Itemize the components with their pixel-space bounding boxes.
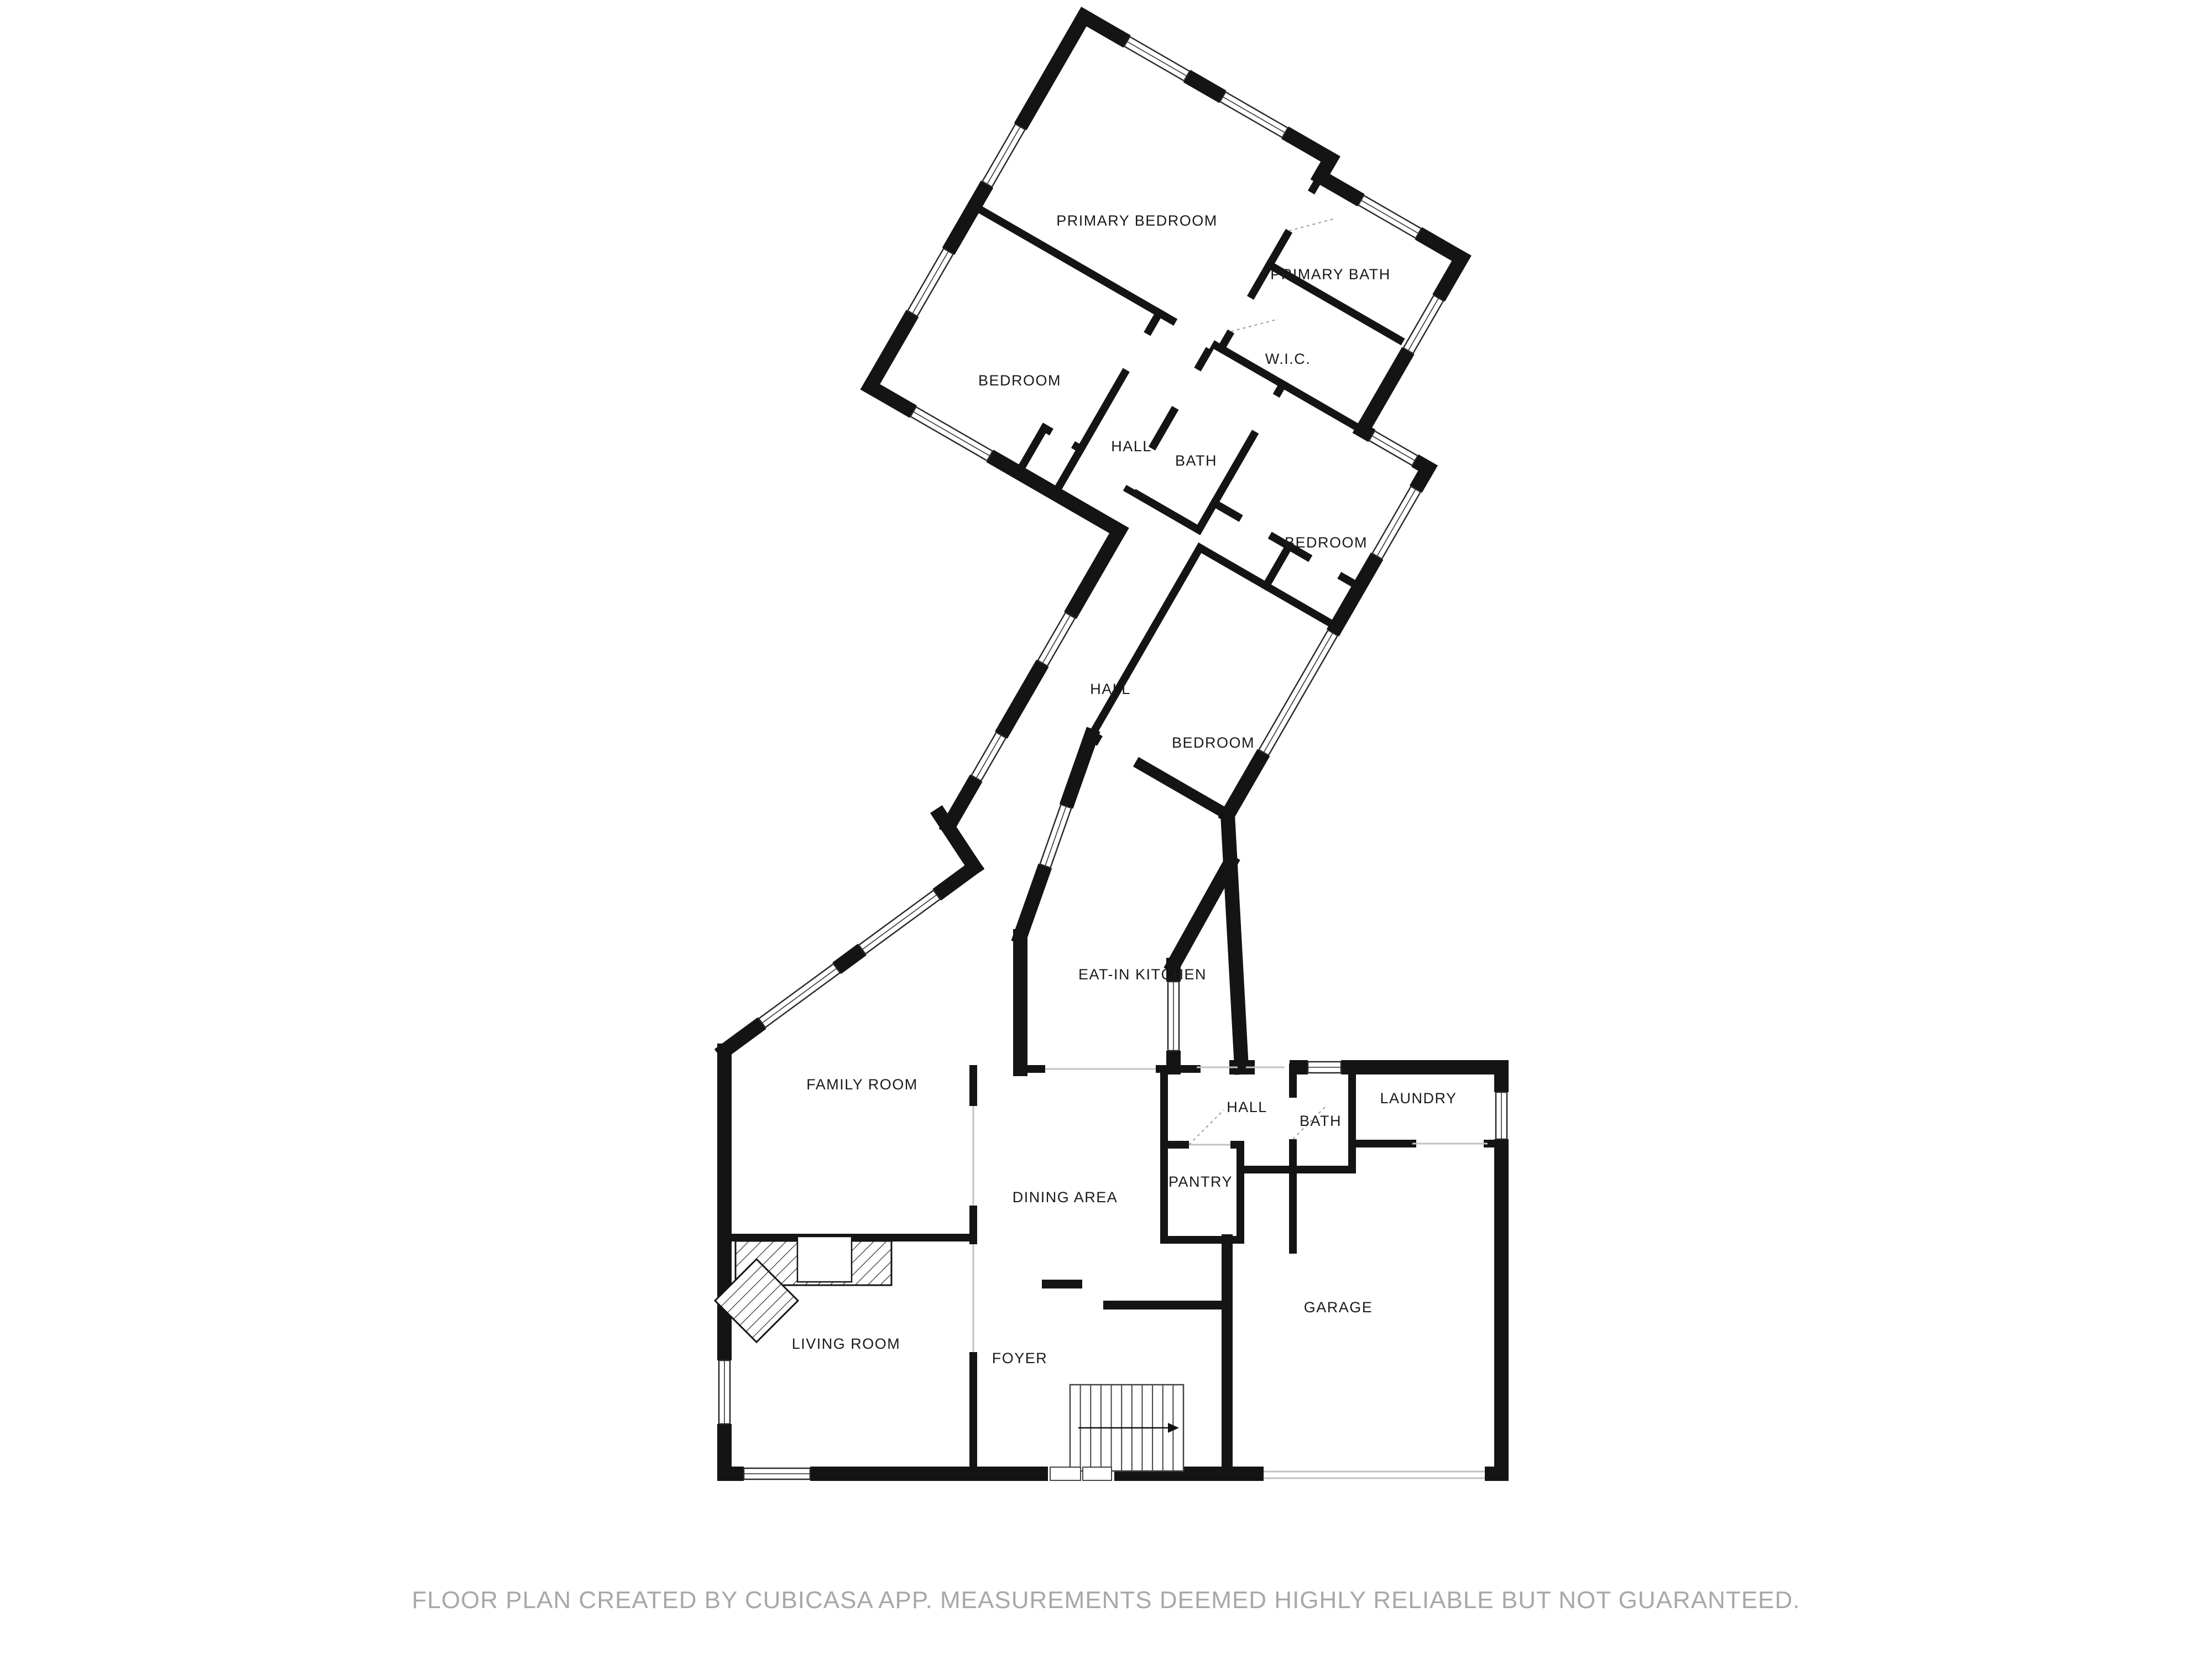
door-opening (1126, 334, 1147, 370)
door-opening (1289, 192, 1311, 231)
wall-segment (1266, 546, 1289, 586)
window-line (765, 973, 840, 1027)
window-line (1259, 630, 1328, 750)
room-label-bath-upper: BATH (1175, 452, 1217, 469)
room-label-bedroom-4: BEDROOM (1172, 734, 1255, 751)
room-label-bedroom-2: BEDROOM (978, 372, 1061, 389)
room-label-dining-area: DINING AREA (1013, 1189, 1118, 1206)
window-line (1223, 97, 1285, 133)
fireplace (715, 1237, 891, 1342)
front-door-panel (1050, 1467, 1081, 1480)
door-opening (1051, 432, 1073, 445)
firebox (797, 1237, 852, 1282)
plan-details (715, 1237, 1183, 1480)
room-label-laundry: LAUNDRY (1380, 1090, 1457, 1107)
window-line (912, 251, 948, 314)
wall-segment (948, 530, 1119, 826)
door-opening (1231, 298, 1250, 332)
wall-segment (1019, 428, 1045, 473)
window-line (987, 127, 1020, 184)
window-line (762, 968, 837, 1023)
window-line (1264, 633, 1333, 753)
wall-segment (1228, 815, 1241, 1067)
window-line (1127, 41, 1187, 76)
room-label-family-room: FAMILY ROOM (806, 1076, 918, 1093)
room-label-hall-upper: HALL (1111, 438, 1152, 455)
floor-plan-canvas: PRIMARY BEDROOMPRIMARY BATHW.I.C.BEDROOM… (0, 0, 2212, 1659)
room-label-living-room: LIVING ROOM (792, 1335, 901, 1352)
room-label-bedroom-3: BEDROOM (1285, 534, 1368, 551)
room-label-eat-in-kitchen: EAT-IN KITCHEN (1078, 966, 1207, 983)
room-label-pantry: PANTRY (1168, 1173, 1233, 1190)
window-line (859, 890, 933, 945)
room-label-primary-bedroom: PRIMARY BEDROOM (1056, 212, 1218, 229)
door-opening (1241, 519, 1270, 535)
wall-segment (974, 206, 1362, 430)
floor-plan-page: PRIMARY BEDROOMPRIMARY BATHW.I.C.BEDROOM… (0, 0, 2212, 1659)
window-line (1269, 635, 1338, 755)
window-line (913, 411, 990, 456)
door-opening (1176, 322, 1213, 344)
wall-segment (870, 17, 1084, 387)
front-entry (1050, 1467, 1112, 1480)
room-label-bath-lower: BATH (1300, 1113, 1342, 1129)
door-opening (1255, 396, 1276, 432)
window-line (1377, 489, 1416, 556)
wall-segment (1091, 548, 1200, 736)
room-label-hall-long: HALL (1090, 681, 1131, 697)
window-line (759, 964, 833, 1019)
door-opening (1100, 741, 1136, 762)
room-label-hall-lower: HALL (1227, 1099, 1267, 1115)
wall-segment (1128, 489, 1198, 530)
window-line (1408, 298, 1438, 351)
wall-segment (870, 387, 1119, 530)
room-labels: PRIMARY BEDROOMPRIMARY BATHW.I.C.BEDROOM… (792, 212, 1457, 1366)
staircase (1070, 1385, 1183, 1471)
door-opening (1311, 559, 1339, 575)
room-label-garage: GARAGE (1304, 1299, 1373, 1316)
bedroom-wing-walls (700, 17, 1537, 944)
disclaimer-text: FLOOR PLAN CREATED BY CUBICASA APP. MEAS… (412, 1587, 1801, 1614)
front-sidelite-panel (1083, 1467, 1112, 1480)
window-line (1361, 200, 1418, 233)
wall-segment (1173, 863, 1230, 965)
window-line (865, 899, 940, 954)
room-label-wic: W.I.C. (1265, 351, 1311, 367)
window-line (862, 895, 937, 950)
room-label-primary-bath: PRIMARY BATH (1270, 266, 1391, 283)
room-label-foyer: FOYER (992, 1350, 1048, 1366)
wall-segment (1084, 17, 1331, 159)
door-opening (1175, 369, 1197, 408)
